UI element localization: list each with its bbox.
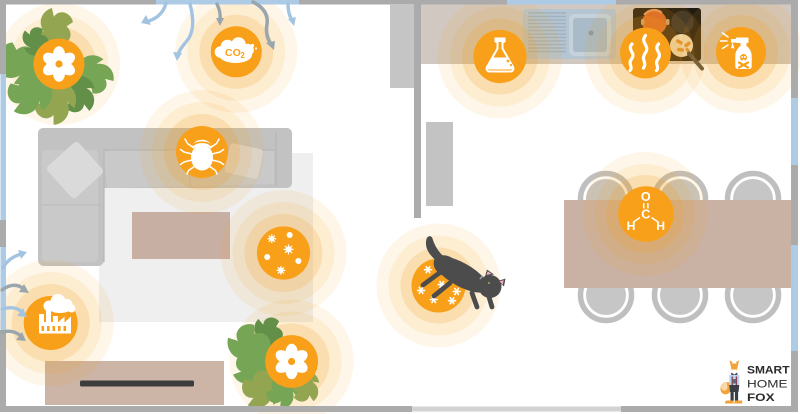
svg-text:HOME: HOME xyxy=(747,378,788,390)
svg-text:CO: CO xyxy=(225,47,241,59)
svg-text:O: O xyxy=(641,190,651,204)
svg-text:FOX: FOX xyxy=(747,392,775,404)
svg-text:C: C xyxy=(641,208,650,222)
svg-text:SMART: SMART xyxy=(747,365,790,377)
svg-text:H: H xyxy=(627,219,636,233)
svg-text:H: H xyxy=(656,219,665,233)
svg-text:2: 2 xyxy=(241,51,246,60)
